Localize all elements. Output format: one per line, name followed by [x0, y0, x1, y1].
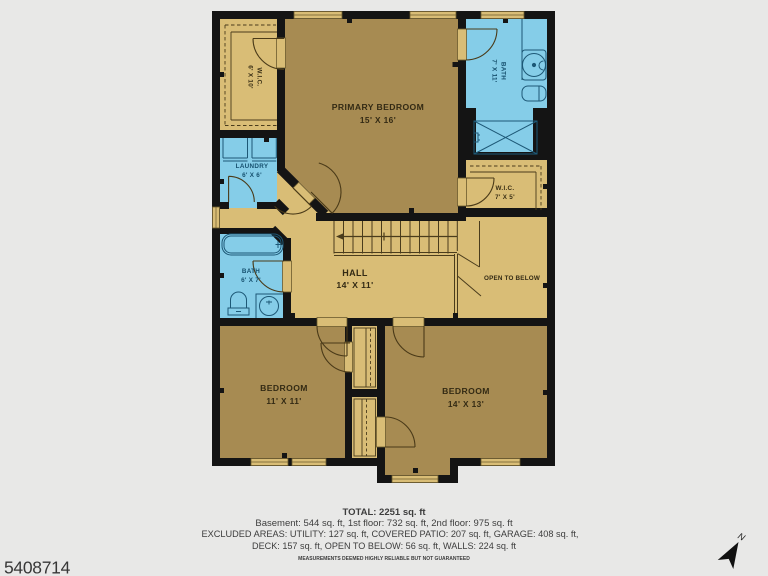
- svg-text:BATH: BATH: [500, 62, 507, 80]
- svg-text:Basement: 544 sq. ft, 1st floo: Basement: 544 sq. ft, 1st floor: 732 sq.…: [255, 518, 513, 529]
- svg-text:6' X 7': 6' X 7': [241, 277, 261, 284]
- svg-text:15' X 16': 15' X 16': [360, 115, 396, 125]
- svg-text:BATH: BATH: [242, 268, 260, 275]
- svg-text:W.I.C.: W.I.C.: [256, 68, 263, 87]
- svg-text:HALL: HALL: [342, 268, 368, 278]
- svg-text:14' X 11': 14' X 11': [336, 280, 373, 290]
- svg-text:BEDROOM: BEDROOM: [442, 386, 490, 396]
- svg-text:TOTAL: 2251 sq. ft: TOTAL: 2251 sq. ft: [342, 507, 426, 518]
- svg-text:BEDROOM: BEDROOM: [260, 383, 308, 393]
- svg-text:PRIMARY BEDROOM: PRIMARY BEDROOM: [332, 102, 424, 112]
- svg-text:LAUNDRY: LAUNDRY: [236, 163, 269, 170]
- svg-text:14' X 13': 14' X 13': [448, 399, 484, 409]
- svg-text:5408714: 5408714: [4, 558, 71, 576]
- svg-text:7' X 5': 7' X 5': [495, 194, 515, 201]
- svg-text:DECK: 157 sq. ft, OPEN TO BELO: DECK: 157 sq. ft, OPEN TO BELOW: 56 sq. …: [252, 541, 516, 551]
- svg-text:6' X 10': 6' X 10': [247, 65, 254, 89]
- svg-text:EXCLUDED AREAS: UTILITY: 127 s: EXCLUDED AREAS: UTILITY: 127 sq. ft, COV…: [202, 529, 579, 539]
- svg-text:7' X 11': 7' X 11': [491, 59, 498, 82]
- svg-text:W.I.C.: W.I.C.: [496, 185, 515, 192]
- svg-text:OPEN TO BELOW: OPEN TO BELOW: [484, 275, 540, 282]
- svg-text:6' X 6': 6' X 6': [242, 172, 262, 179]
- svg-text:11' X 11': 11' X 11': [266, 396, 301, 406]
- svg-text:MEASUREMENTS DEEMED HIGHLY REL: MEASUREMENTS DEEMED HIGHLY RELIABLE BUT …: [298, 556, 470, 562]
